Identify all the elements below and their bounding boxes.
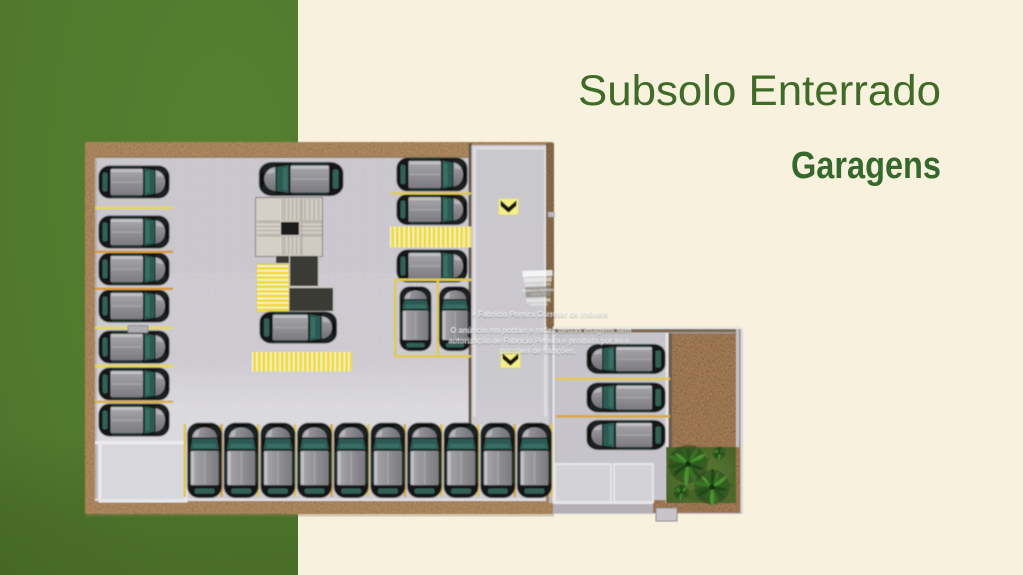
svg-text:CORRETOR: CORRETOR — [531, 292, 546, 297]
svg-text:autorização de Fabrício Pereir: autorização de Fabrício Pereira e proibi… — [449, 336, 630, 346]
svg-text:Subsolo Enterrado: Subsolo Enterrado — [578, 67, 941, 115]
svg-text:passível de sanções.: passível de sanções. — [500, 346, 576, 356]
svg-text:« Fabrício Pereira Corretor de: « Fabrício Pereira Corretor de Imóveis — [472, 309, 608, 319]
svg-text:O anúncio em portais e redes d: O anúncio em portais e redes destas imag… — [451, 325, 632, 335]
svg-text:Garagens: Garagens — [791, 145, 941, 187]
